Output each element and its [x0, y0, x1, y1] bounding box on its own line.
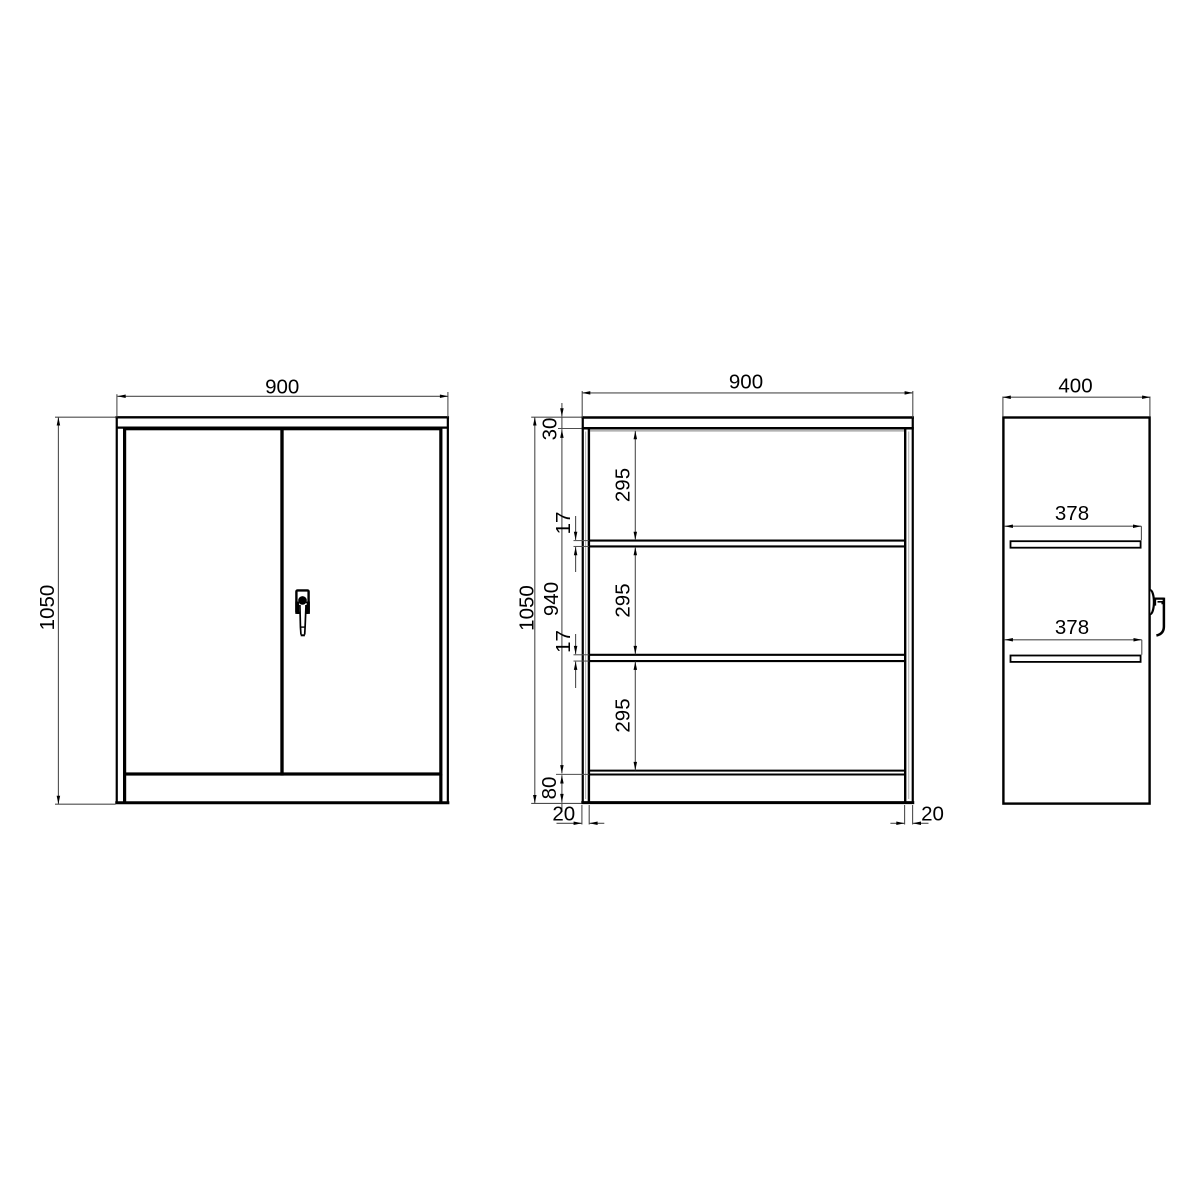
svg-text:295: 295	[612, 698, 635, 732]
svg-text:1050: 1050	[515, 585, 538, 631]
svg-text:20: 20	[921, 803, 944, 826]
svg-text:378: 378	[1055, 502, 1089, 525]
svg-text:80: 80	[538, 777, 561, 800]
svg-text:20: 20	[552, 803, 575, 826]
svg-text:17: 17	[552, 630, 575, 653]
svg-text:400: 400	[1058, 374, 1092, 397]
svg-text:295: 295	[612, 583, 635, 617]
svg-text:295: 295	[612, 468, 635, 502]
svg-text:900: 900	[729, 371, 763, 394]
svg-text:378: 378	[1055, 616, 1089, 639]
svg-text:17: 17	[552, 512, 575, 535]
svg-text:900: 900	[265, 375, 299, 398]
svg-text:1050: 1050	[36, 585, 59, 631]
svg-text:30: 30	[538, 418, 561, 441]
svg-text:940: 940	[540, 582, 563, 616]
